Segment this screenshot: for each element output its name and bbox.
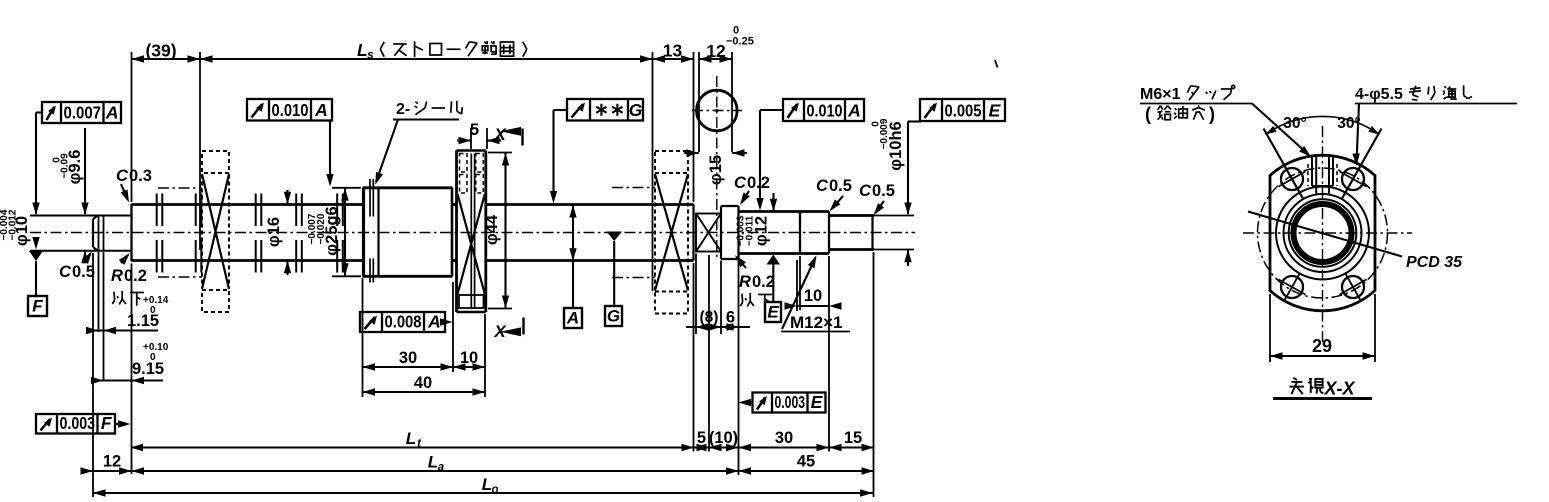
svg-text:0.010: 0.010 [272, 100, 309, 120]
svg-text:0.5: 0.5 [829, 177, 852, 195]
svg-text:45: 45 [797, 453, 815, 471]
svg-text:A: A [566, 309, 579, 328]
svg-text:(: ( [1145, 104, 1151, 124]
svg-text:0.010: 0.010 [807, 101, 843, 121]
svg-text:13: 13 [663, 41, 683, 61]
svg-text:X: X [493, 125, 507, 144]
svg-text:5: 5 [697, 429, 706, 447]
svg-text:29: 29 [1312, 336, 1332, 356]
svg-text:PCD 35: PCD 35 [1406, 254, 1463, 271]
svg-text:0: 0 [150, 305, 156, 316]
svg-text:A: A [427, 312, 441, 332]
svg-text:0.5: 0.5 [872, 182, 895, 200]
svg-text:4-φ5.5: 4-φ5.5 [1355, 86, 1403, 103]
svg-text:A: A [105, 103, 119, 123]
svg-text:M12×1: M12×1 [790, 313, 842, 332]
svg-text:E: E [811, 392, 824, 412]
svg-text:−0.25: −0.25 [726, 36, 754, 48]
svg-text:12: 12 [706, 41, 726, 61]
svg-text:C: C [116, 167, 129, 185]
svg-text:0.008: 0.008 [385, 312, 422, 332]
svg-text:(8): (8) [700, 309, 719, 326]
svg-text:φ16: φ16 [265, 217, 283, 247]
svg-text:2-: 2- [396, 101, 410, 118]
svg-text:C: C [859, 182, 872, 200]
svg-text:0.003: 0.003 [60, 413, 96, 433]
svg-text:X-X: X-X [1324, 379, 1356, 399]
svg-text:F: F [32, 297, 43, 316]
svg-text:0: 0 [150, 352, 156, 363]
svg-text:30: 30 [399, 349, 417, 367]
svg-text:0.2: 0.2 [752, 273, 775, 291]
svg-text:F: F [101, 413, 113, 433]
svg-text:E: E [767, 303, 779, 322]
svg-text:−0.009: −0.009 [879, 118, 890, 149]
svg-text:C: C [734, 174, 747, 192]
svg-text:): ) [1209, 104, 1215, 124]
svg-text:12: 12 [103, 453, 121, 471]
svg-text:E: E [989, 101, 1002, 121]
svg-text:L: L [406, 429, 416, 448]
svg-text:30: 30 [775, 429, 793, 447]
svg-text:A: A [314, 100, 328, 120]
svg-text:40: 40 [414, 374, 432, 392]
svg-text:10: 10 [460, 349, 478, 367]
svg-text:M6×1: M6×1 [1140, 86, 1181, 103]
svg-text:φ44: φ44 [483, 214, 501, 245]
svg-text:−0.020: −0.020 [316, 213, 327, 244]
svg-text:o: o [491, 484, 498, 496]
svg-text:+0.10: +0.10 [143, 342, 169, 353]
svg-text:φ15: φ15 [707, 155, 725, 185]
svg-text:9.15: 9.15 [132, 360, 164, 378]
svg-text:s: s [367, 48, 374, 62]
svg-text:0.005: 0.005 [945, 101, 982, 121]
svg-text:L: L [428, 453, 438, 472]
svg-text:30°: 30° [1283, 115, 1306, 132]
svg-text:0.5: 0.5 [72, 263, 95, 281]
svg-text:C: C [59, 263, 72, 281]
svg-text:−0.012: −0.012 [8, 209, 19, 240]
svg-text:(10): (10) [709, 429, 738, 447]
svg-text:0.2: 0.2 [124, 267, 147, 285]
svg-text:0.007: 0.007 [64, 103, 102, 123]
svg-text:R: R [739, 273, 751, 291]
svg-text:6: 6 [726, 309, 735, 327]
svg-text:−0.09: −0.09 [60, 153, 71, 179]
svg-text:+0.14: +0.14 [143, 295, 169, 306]
svg-text:R: R [111, 267, 123, 285]
svg-text:15: 15 [844, 429, 862, 447]
svg-text:(39): (39) [145, 41, 176, 61]
svg-text:a: a [438, 462, 445, 474]
svg-text:0.3: 0.3 [129, 167, 152, 185]
svg-text:G: G [607, 307, 620, 326]
svg-text:5: 5 [470, 121, 479, 139]
svg-text:C: C [816, 177, 829, 195]
svg-text:A: A [847, 101, 861, 121]
svg-text:10: 10 [804, 287, 822, 305]
svg-text:G: G [629, 100, 643, 120]
svg-text:−0.011: −0.011 [745, 215, 756, 246]
svg-text:0.2: 0.2 [747, 174, 770, 192]
svg-text:0.003: 0.003 [775, 392, 806, 412]
